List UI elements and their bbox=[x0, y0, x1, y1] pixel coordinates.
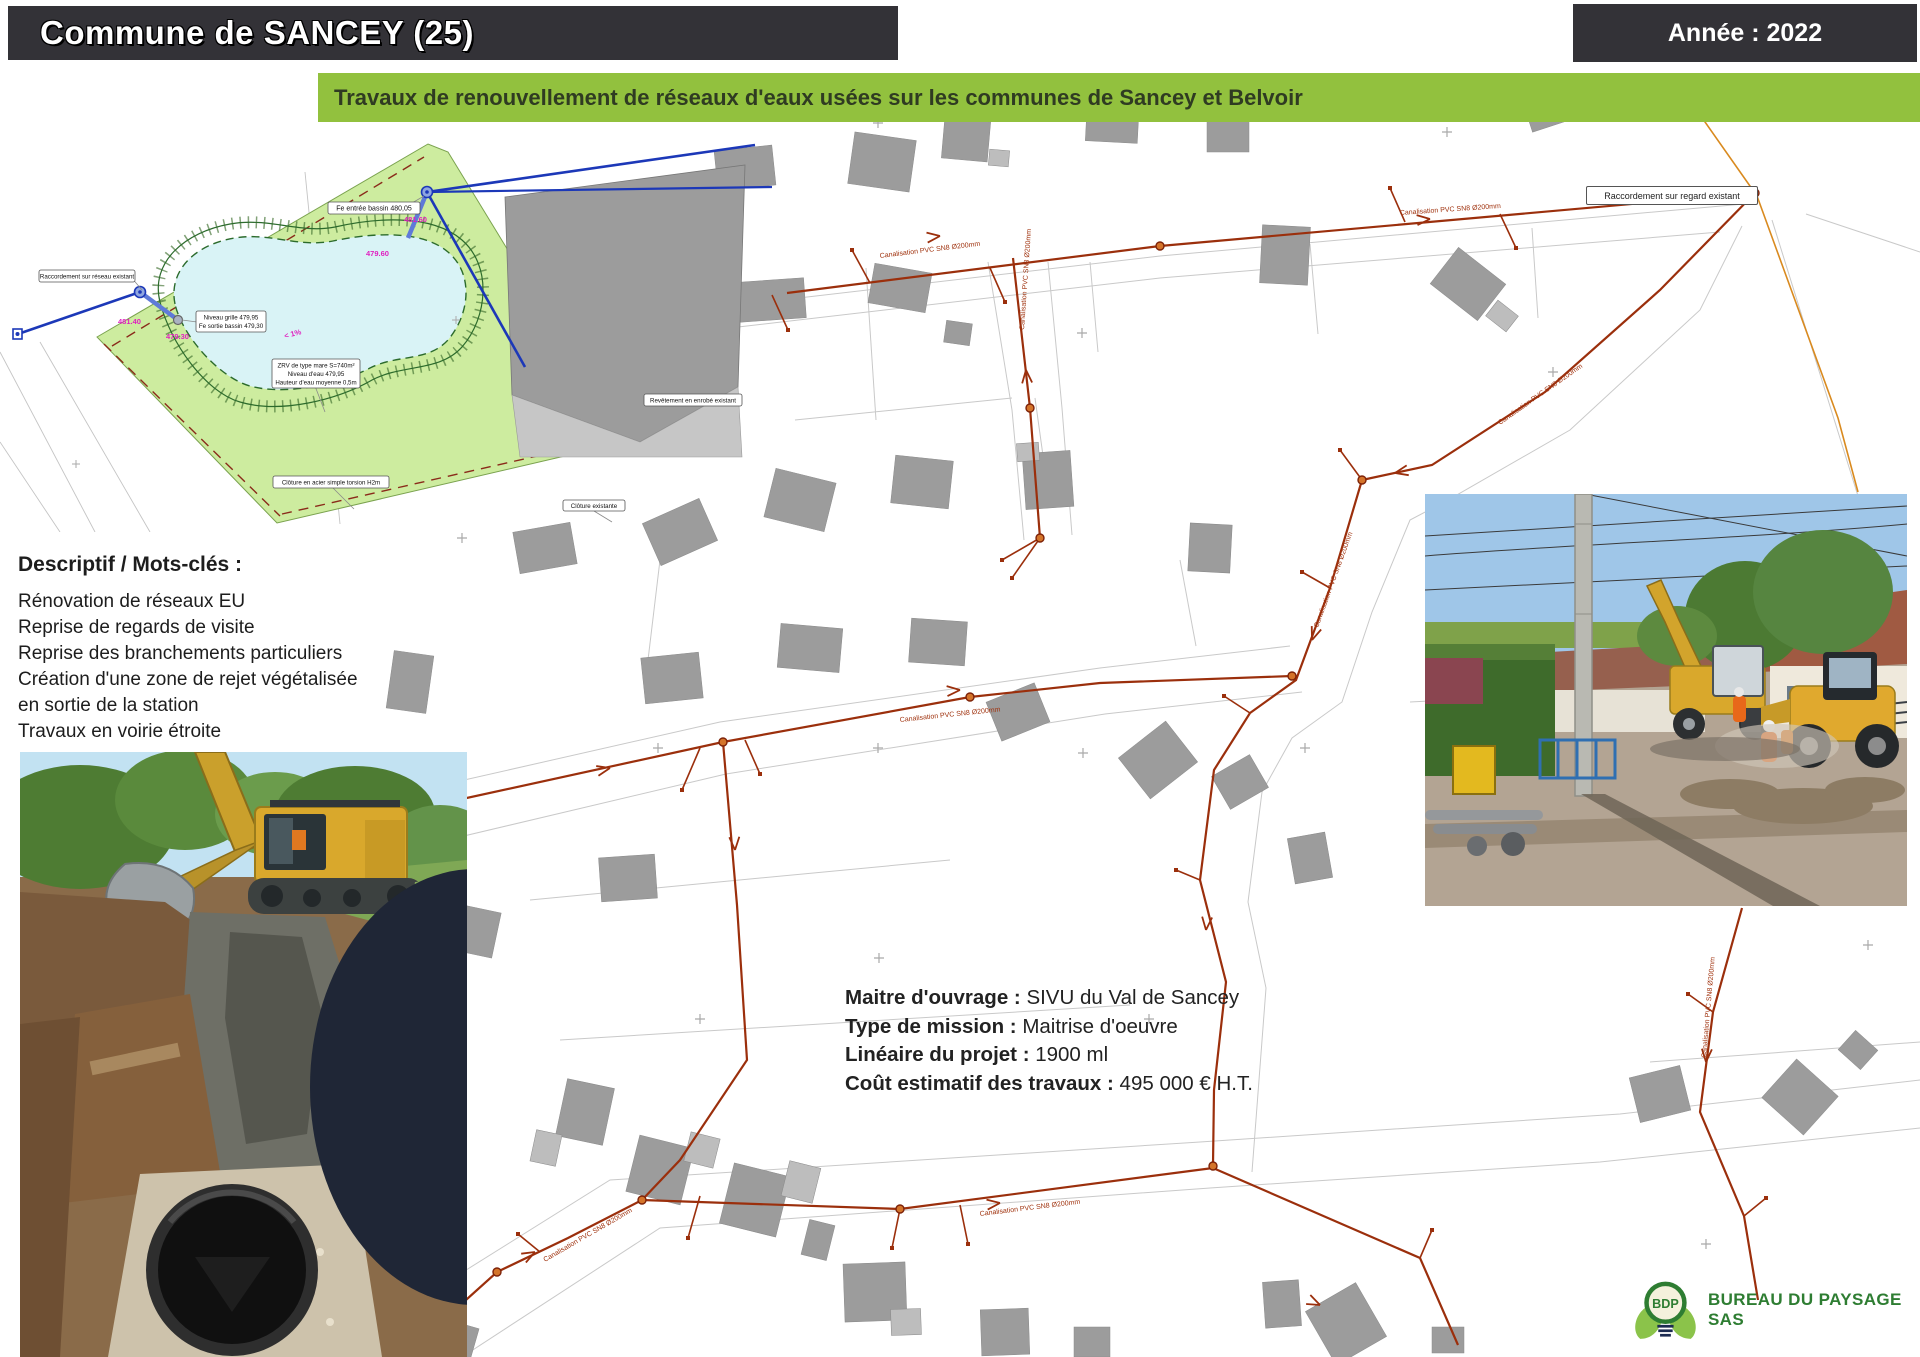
company-logo: BDP BUREAU DU PAYSAGE SAS bbox=[1633, 1272, 1920, 1348]
descriptif-line: Création d'une zone de rejet végétalisée bbox=[18, 667, 458, 693]
photo-street-works bbox=[1425, 494, 1907, 906]
project-row: Linéaire du projet : 1900 ml bbox=[845, 1041, 1325, 1070]
page-title: Commune de SANCEY (25) bbox=[40, 14, 474, 52]
year-badge: Année : 2022 bbox=[1573, 4, 1917, 62]
bdp-acronym: BDP bbox=[1652, 1297, 1679, 1311]
manhole-ring bbox=[152, 1190, 312, 1350]
project-label: Coût estimatif des travaux : bbox=[845, 1072, 1120, 1095]
page-title-bar: Commune de SANCEY (25) bbox=[8, 6, 898, 60]
label-cloture-existante: Clôture existante bbox=[571, 503, 618, 510]
label-cloture-acier: Clôture en acier simple torsion H2m bbox=[282, 480, 380, 487]
elev-479-60: 479.60 bbox=[366, 249, 389, 258]
project-value: SIVU du Val de Sancey bbox=[1026, 986, 1239, 1009]
project-row: Maitre d'ouvrage : SIVU du Val de Sancey bbox=[845, 984, 1325, 1013]
descriptif-line: Rénovation de réseaux EU bbox=[18, 589, 458, 615]
project-row: Type de mission : Maitrise d'oeuvre bbox=[845, 1013, 1325, 1042]
map-label-raccordement-regard: Raccordement sur regard existant bbox=[1586, 186, 1758, 205]
label-zrv-1: ZRV de type mare S=740m² bbox=[277, 363, 354, 370]
project-label: Type de mission : bbox=[845, 1015, 1022, 1038]
project-info-block: Maitre d'ouvrage : SIVU du Val de Sancey… bbox=[845, 984, 1325, 1098]
project-banner: Travaux de renouvellement de réseaux d'e… bbox=[318, 73, 1920, 122]
label-revetement: Revêtement en enrobé existant bbox=[650, 398, 736, 405]
project-label: Linéaire du projet : bbox=[845, 1043, 1035, 1066]
descriptif-line: Reprise de regards de visite bbox=[18, 615, 458, 641]
year-text: Année : 2022 bbox=[1668, 19, 1822, 48]
label-raccordement-reseau: Raccordement sur réseau existant bbox=[40, 274, 135, 281]
label-niveau-grille: Niveau grille 479,95 bbox=[204, 315, 259, 322]
project-row: Coût estimatif des travaux : 495 000 € H… bbox=[845, 1070, 1325, 1099]
photo-excavator-trench bbox=[20, 752, 467, 1357]
basin-plan-drawing: Fe entrée bassin 480,05 Raccordement sur… bbox=[0, 112, 780, 532]
label-fe-entree: Fe entrée bassin 480,05 bbox=[336, 206, 412, 213]
descriptif-line: Travaux en voirie étroite bbox=[18, 719, 458, 745]
project-value: 1900 ml bbox=[1035, 1043, 1108, 1066]
project-value: Maitrise d'oeuvre bbox=[1022, 1015, 1177, 1038]
elev-479-30: 479.30 bbox=[166, 332, 189, 341]
map-label-text: Raccordement sur regard existant bbox=[1604, 191, 1740, 201]
descriptif-block: Descriptif / Mots-clés : Rénovation de r… bbox=[18, 553, 458, 745]
elev-481-60: 481.60 bbox=[404, 215, 427, 224]
bdp-logo-icon: BDP bbox=[1633, 1272, 1698, 1348]
label-zrv-2: Niveau d'eau 479,95 bbox=[288, 371, 345, 378]
label-fe-sortie: Fe sortie bassin 479,30 bbox=[199, 323, 264, 330]
project-label: Maitre d'ouvrage : bbox=[845, 986, 1026, 1009]
descriptif-line: en sortie de la station bbox=[18, 693, 458, 719]
descriptif-heading: Descriptif / Mots-clés : bbox=[18, 553, 458, 577]
banner-text: Travaux de renouvellement de réseaux d'e… bbox=[334, 85, 1303, 111]
project-value: 495 000 € H.T. bbox=[1120, 1072, 1253, 1095]
descriptif-line: Reprise des branchements particuliers bbox=[18, 641, 458, 667]
elev-481-40: 481.40 bbox=[118, 317, 141, 326]
label-zrv-3: Hauteur d'eau moyenne 0,5m bbox=[275, 380, 356, 387]
company-name: BUREAU DU PAYSAGE SAS bbox=[1708, 1290, 1920, 1330]
